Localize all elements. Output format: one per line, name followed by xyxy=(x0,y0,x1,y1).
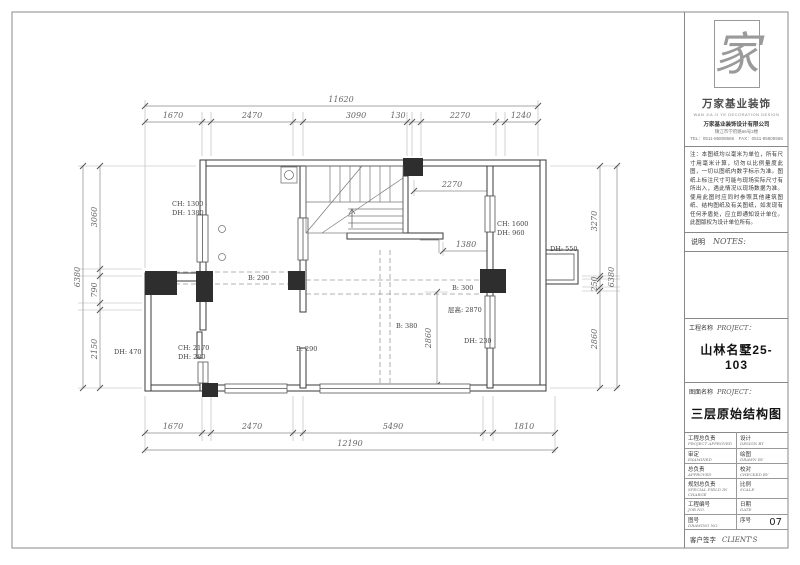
dim-bottom-2: 2470 xyxy=(241,422,262,431)
dim-left-3: 2150 xyxy=(90,339,99,360)
cell-en: SPECIAL FIELD IN CHARGE xyxy=(688,488,733,497)
project-name-value: 山林名墅25-103 xyxy=(689,341,784,372)
windows xyxy=(197,196,495,393)
dim-right-3: 2860 xyxy=(590,329,599,350)
table-row: 图号DRAWING NO. 序号 07 xyxy=(685,514,788,529)
column-bottom xyxy=(202,383,218,397)
label-dh470: DH: 470 xyxy=(114,348,142,356)
drawing-label-en: PROJECT： xyxy=(717,386,755,396)
cell-en: DATE xyxy=(740,508,785,512)
notes-label-cn: 说明 xyxy=(691,237,705,247)
notes-header: 说明 NOTES: xyxy=(685,232,788,252)
column-top xyxy=(403,158,423,176)
label-b380: B: 380 xyxy=(396,322,417,330)
drawing-sheet: { "titleblock": { "logo_char": "家", "bra… xyxy=(0,0,800,560)
cell-en: EXAMINED xyxy=(688,458,733,462)
cell-en: PROJECT APPROVED xyxy=(688,442,733,446)
company-address: 镇江市学府路66号2楼 xyxy=(685,129,788,135)
floor-plan-canvas: 11620 1670 2470 3090 130 2270 1240 1670 … xyxy=(0,0,800,560)
dim-right-overall: 6380 xyxy=(607,267,616,287)
company-name: 万家基业装饰设计有限公司 xyxy=(685,120,788,128)
client-signature-row: 客户签字 CLIENT'S xyxy=(685,530,788,548)
sheet-serial-number: 07 xyxy=(769,517,782,528)
wall-b-upper xyxy=(487,166,493,196)
table-row: 规划总负责SPECIAL FIELD IN CHARGE 比例SCALE xyxy=(685,479,788,499)
label-dh1380: DH: 1380 xyxy=(172,209,204,217)
stair-side-wall xyxy=(403,176,408,233)
point-marker-1 xyxy=(219,226,226,233)
point-marker-2 xyxy=(219,254,226,261)
company-phone: TEL：0511-85808666 FAX：0511-85808666 xyxy=(685,136,788,142)
blank-area xyxy=(685,252,788,319)
dim-inner-2270: 2270 xyxy=(441,180,462,189)
logo-calligraphy-glyph: 家 xyxy=(714,31,760,77)
window-bottom-1 xyxy=(225,384,287,393)
project-name-block: 工程名称 PROJECT： 山林名墅25-103 xyxy=(685,318,788,382)
table-row: 工程总负责PROJECT APPROVED 设计DESIGN BY xyxy=(685,433,788,448)
dim-left-2: 790 xyxy=(90,282,99,297)
table-row: 审定EXAMINED 绘图DRAWN BY xyxy=(685,448,788,463)
window-wall-b-upper xyxy=(485,196,495,232)
window-left xyxy=(197,215,208,262)
label-dh280: DH: 280 xyxy=(178,353,206,361)
dim-left-overall: 6380 xyxy=(73,267,82,287)
dim-left-1: 3060 xyxy=(90,207,99,227)
cell-en: DESIGN BY xyxy=(740,442,785,446)
sheet-border xyxy=(12,12,788,548)
wall-right xyxy=(540,160,546,391)
notes-label-en: NOTES: xyxy=(713,237,746,246)
cell-en: DRAWING NO. xyxy=(688,524,733,528)
signature-table: 工程总负责PROJECT APPROVED 设计DESIGN BY 审定EXAM… xyxy=(685,432,788,530)
brand-name: 万家基业装饰 xyxy=(685,96,788,111)
window-left-lower xyxy=(198,362,208,383)
cell-en: CHECKED BY xyxy=(740,473,785,477)
label-cenggao: 层高: 2870 xyxy=(448,305,482,314)
drawing-label-cn: 图面名称 xyxy=(689,387,713,396)
dim-bottom-4: 1810 xyxy=(514,422,534,431)
column-left-inner xyxy=(196,271,213,302)
client-label-cn: 客户签字 xyxy=(690,534,716,544)
dim-top-overall: 11620 xyxy=(328,95,353,104)
columns xyxy=(145,158,506,397)
column-right xyxy=(480,269,506,293)
label-b290a: B: 290 xyxy=(248,274,269,282)
dim-right-1: 3270 xyxy=(590,211,599,231)
fixture-circle xyxy=(285,171,294,180)
dim-inner-2860: 2860 xyxy=(424,328,433,349)
fixtures xyxy=(219,167,298,261)
dim-right-2: 250 xyxy=(590,276,599,292)
cell-en: JOB NO. xyxy=(688,508,733,512)
wall-notch-inner xyxy=(546,254,574,280)
window-wall-a xyxy=(298,218,308,260)
dim-top-3: 3090 xyxy=(346,111,366,120)
label-b290b: B: 290 xyxy=(296,345,317,353)
logo-area: 家 xyxy=(685,12,788,96)
title-block-panel: 家 万家基业装饰 WAN JIA JI YE DECORATION DESIGN… xyxy=(684,12,788,548)
label-dh550: DH: 550 xyxy=(550,245,578,253)
client-label-en: CLIENT'S xyxy=(722,536,757,544)
cell-en: SCALE xyxy=(740,488,785,492)
dim-top-2: 2470 xyxy=(241,111,262,120)
cell-en: APPROVED xyxy=(688,473,733,477)
cell-en: DRAWN BY xyxy=(740,458,785,462)
label-ch1600: CH: 1600 xyxy=(497,220,528,228)
column-center xyxy=(288,271,305,290)
label-ch2170: CH: 2170 xyxy=(178,344,209,352)
staircase xyxy=(306,166,403,233)
table-row: 总负责APPROVED 校对CHECKED BY xyxy=(685,464,788,479)
dim-bottom-1: 1670 xyxy=(163,422,183,431)
dim-top-6: 1240 xyxy=(511,111,531,120)
stair-landing-wall xyxy=(347,233,443,239)
label-dh960: DH: 960 xyxy=(497,229,525,237)
dim-top-4: 130 xyxy=(390,111,405,120)
label-ch1300: CH: 1300 xyxy=(172,200,203,208)
general-notes: 注：本图纸均以毫米为单位，所有尺寸用毫米计算，切勿以比例量度此图，一切以图纸内数… xyxy=(685,146,788,232)
drawing-name-block: 图面名称 PROJECT： 三层原始结构图 xyxy=(685,382,788,432)
dim-top-1: 1670 xyxy=(163,111,183,120)
wall-a-upper xyxy=(300,166,306,218)
company-logo: 家 xyxy=(714,20,760,88)
project-label-cn: 工程名称 xyxy=(689,323,713,332)
dim-inner-1380: 1380 xyxy=(456,240,476,249)
drawing-name-value: 三层原始结构图 xyxy=(689,405,784,422)
wall-b-lower xyxy=(487,348,493,388)
brand-tagline: WAN JIA JI YE DECORATION DESIGN xyxy=(685,112,788,117)
label-b300: B: 300 xyxy=(452,284,473,292)
dim-top-5: 2270 xyxy=(449,111,470,120)
column-left-outer xyxy=(145,271,177,295)
dim-bottom-3: 5490 xyxy=(383,422,403,431)
window-bottom-2 xyxy=(320,384,470,393)
project-label-en: PROJECT： xyxy=(717,322,755,332)
wall-notch-outer xyxy=(546,250,578,284)
wall-top xyxy=(200,160,546,166)
label-dh230: DH: 230 xyxy=(464,337,492,345)
table-row: 工程编号JOB NO. 日期DATE xyxy=(685,499,788,514)
wall-a-lower xyxy=(300,348,306,388)
dim-bottom-overall: 12190 xyxy=(337,439,362,448)
